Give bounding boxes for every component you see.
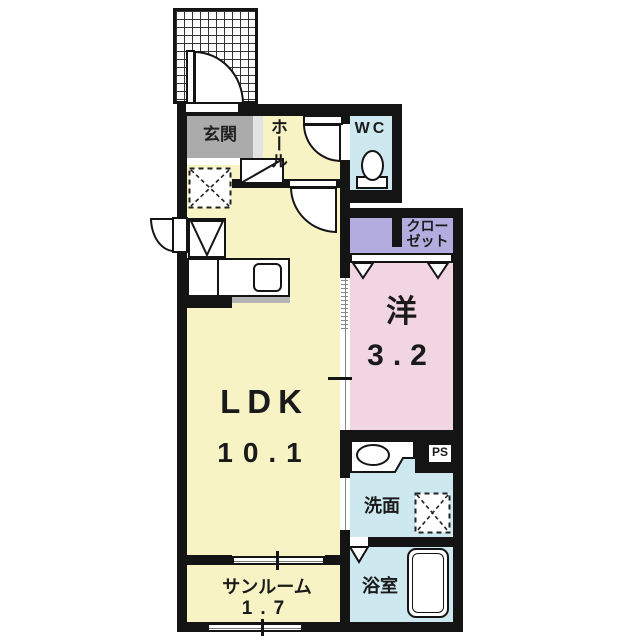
genkan-step-strip bbox=[253, 116, 263, 164]
stove-icon bbox=[188, 218, 226, 258]
wc-label: WC bbox=[350, 121, 392, 138]
wall-sunroom-div-b bbox=[325, 555, 350, 565]
closet-door-v-right-icon bbox=[426, 262, 450, 280]
wall-kitchen-stub bbox=[187, 297, 232, 308]
closet-label: クロー ゼット bbox=[400, 219, 455, 248]
sunroom-window-top-tick bbox=[276, 551, 279, 570]
bathtub-icon bbox=[407, 548, 449, 618]
wall-closet-top bbox=[340, 208, 463, 218]
counter-edge-shadow bbox=[232, 297, 290, 303]
sliding-door-center-tick bbox=[328, 377, 352, 380]
ldk-size: 10.1 bbox=[187, 438, 342, 467]
kitchen-sink bbox=[253, 263, 282, 292]
kitchen-counter-divider bbox=[217, 259, 219, 296]
sunroom-size: 1.7 bbox=[187, 599, 347, 619]
kitchen-back-door-arc bbox=[150, 218, 174, 252]
western-room-label: 洋 bbox=[350, 296, 453, 329]
wc-doorway-gap bbox=[341, 124, 350, 160]
hall-label: ホール bbox=[268, 118, 286, 210]
sunroom-window-bottom bbox=[207, 623, 303, 632]
sunroom-window-bottom-tick bbox=[261, 619, 264, 636]
ps-label: PS bbox=[427, 446, 453, 459]
sliding-door-hatch bbox=[341, 280, 348, 330]
closet-label-line1: クロー bbox=[400, 219, 455, 234]
wall-right-lower bbox=[453, 208, 463, 632]
floor-plan: 玄関 ホール WC クロー ゼット 洋 3.2 LDK 10.1 洗面 PS 浴… bbox=[0, 0, 640, 640]
closet-door-v-left-icon bbox=[351, 262, 375, 280]
washing-machine-space-icon bbox=[414, 492, 451, 534]
closet-label-line2: ゼット bbox=[400, 234, 455, 249]
sliding-door-washroom bbox=[340, 478, 350, 530]
kitchen-back-door-leaf bbox=[172, 217, 188, 253]
sliding-door-rail bbox=[345, 478, 347, 530]
bathroom-folding-door-icon bbox=[348, 546, 370, 564]
wall-right-upper bbox=[392, 104, 402, 203]
refrigerator-space-icon bbox=[188, 167, 232, 209]
bathroom-label: 浴室 bbox=[352, 577, 408, 596]
wall-center-b bbox=[340, 160, 350, 278]
bathtub-inner-rim bbox=[412, 553, 444, 613]
sunroom-label: サンルーム bbox=[187, 578, 347, 597]
wall-sunroom-div-a bbox=[177, 555, 232, 565]
toilet-bowl-icon bbox=[361, 150, 384, 181]
genkan-label: 玄関 bbox=[187, 126, 253, 144]
wall-left bbox=[177, 104, 187, 632]
wall-hall-ldk-b bbox=[336, 179, 350, 188]
western-room-size: 3.2 bbox=[350, 340, 453, 372]
vanity-sink-icon bbox=[350, 440, 416, 474]
washroom-label: 洗面 bbox=[350, 497, 414, 516]
ldk-label: LDK bbox=[187, 385, 342, 420]
